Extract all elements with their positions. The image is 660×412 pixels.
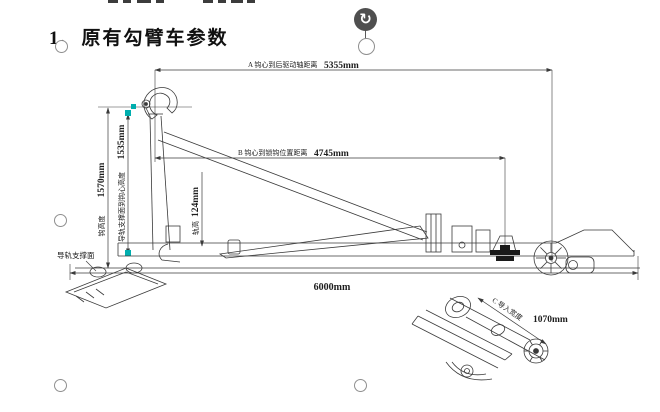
dim-b-value: 4745mm xyxy=(314,149,349,159)
dim-a-label: A 钩心到后驱动轴距离 xyxy=(248,60,317,69)
dim-rail-section-value: 124mm xyxy=(191,187,201,217)
truck-side-view xyxy=(75,88,640,275)
rotate-arrow-glyph: ↻ xyxy=(359,12,372,27)
technical-drawing[interactable]: A 钩心到后驱动轴距离 5355mm B 钩心到锁钩位置距离 4745mm 15… xyxy=(0,0,660,412)
dim-height-rail-value: 1535mm xyxy=(117,125,127,160)
dim-height-total-label: 钩高度 xyxy=(97,216,106,237)
selection-handle-bottom-center[interactable] xyxy=(354,379,367,392)
selection-handle-top-center[interactable] xyxy=(358,38,375,55)
rail-support-label: 导轨支撑面 xyxy=(57,250,95,260)
dim-height-rail-label: 导轨支撑面到钩心高度 xyxy=(117,172,126,242)
dim-b-label: B 钩心到锁钩位置距离 xyxy=(238,148,307,157)
selection-handle-bottom-left[interactable] xyxy=(54,379,67,392)
dimension-lines xyxy=(70,70,638,344)
selection-handle-mid-left[interactable] xyxy=(54,214,67,227)
dim-rail-section-label: 轨高 xyxy=(191,221,200,235)
guide-in-detail xyxy=(412,292,548,379)
selection-handle-top-left[interactable] xyxy=(55,40,68,53)
dim-c-value: 1070mm xyxy=(533,315,568,325)
dim-length-value: 6000mm xyxy=(314,282,351,293)
rotate-handle-icon[interactable]: ↻ xyxy=(354,8,377,31)
dim-a-value: 5355mm xyxy=(324,61,359,71)
dim-height-total-value: 1570mm xyxy=(97,163,107,198)
